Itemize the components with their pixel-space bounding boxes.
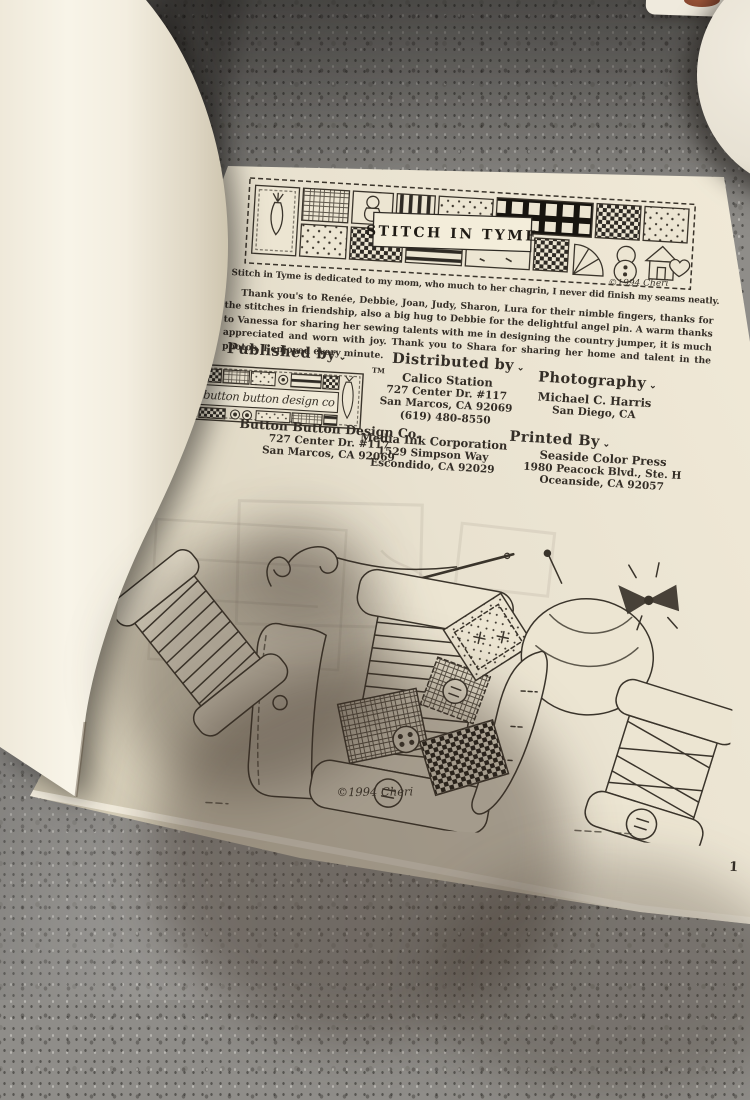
heading-mark-icon: ⌄ — [602, 439, 611, 449]
photo-of-booklet-on-countertop: { "photo": { "page": { "banner_title": "… — [0, 0, 750, 1000]
heading-mark-icon: ⌄ — [338, 353, 347, 363]
heading-mark-icon: ⌄ — [649, 381, 658, 391]
printer-block: Seaside Color Press 1980 Peacock Blvd., … — [506, 447, 698, 496]
illustration-signature: ©1994 Cheri — [336, 784, 413, 799]
banner-title-label: STITCH IN TYME — [365, 212, 539, 252]
banner-signature: ©1994 Cheri — [608, 278, 668, 288]
countertop-shadow-strip — [205, 0, 750, 182]
page-number: 1 — [729, 860, 739, 876]
flipped-book-cover — [0, 0, 250, 810]
